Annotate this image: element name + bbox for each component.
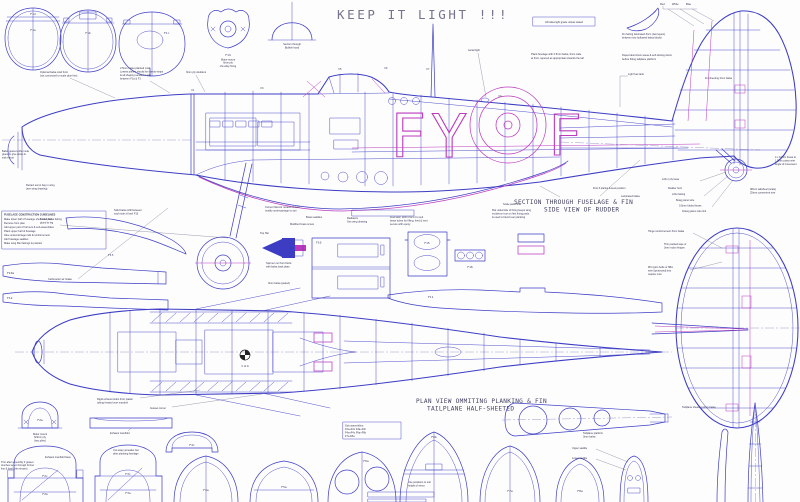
radiators-note-2: See wing drawing <box>347 220 368 224</box>
part-f10-crutch: F10 <box>312 238 390 298</box>
paired-balsa-note: 3mm balsa (paired) <box>268 281 290 285</box>
gusset-nose-3: side thrust <box>2 155 14 159</box>
spinner-note-1: Spinner cut from block <box>266 261 292 265</box>
former-label-f10a: F10a <box>7 271 14 275</box>
light-tank-note: Light fuel tank <box>628 72 645 76</box>
fuse-plank-note-2: at front, tapered as appropriate towards… <box>531 56 584 60</box>
fin-sheeting-note: Fin sheeting 2mm balsa <box>705 76 733 80</box>
construction-guidelines-box: FUSELAGE CONSTRUCTION GUIDELINES Make lo… <box>2 211 106 249</box>
lower-saddle-note: Lower saddle <box>572 456 588 460</box>
doped-note-1: Doped aluminium areas & self-closing doo… <box>622 53 673 57</box>
former-f2c-f2a: F2c F2a <box>8 446 83 502</box>
flash-blue-label: Blue <box>686 2 692 6</box>
tophat-note: Top Hat <box>260 231 269 235</box>
manifold-base-note: Exhaust manifold base <box>45 455 71 459</box>
hood-section-label-1: Section through <box>283 42 301 46</box>
part-f13-fairing: F13 <box>66 217 186 257</box>
saddle-bars <box>518 234 544 254</box>
material-note-text: All balsa light grade unless stated <box>545 20 584 24</box>
former-label-f6a: F6a <box>363 459 369 463</box>
platform-note-2: 3mm balsa <box>583 435 596 439</box>
spitfire-plan-drawing: F1d F1a F1b F1c F14 Motor mount 6mm ply … <box>0 0 800 502</box>
retracts-note-1: Current Mel-Air retracts shown <box>265 205 300 209</box>
tailwheel-note-1: 38mm tailwheel (scale) <box>750 187 776 191</box>
aerial-light-note: Aerial light <box>468 48 480 52</box>
former-f8a: F8a <box>556 458 604 502</box>
mm2a-note-3: (two plies) <box>34 438 46 442</box>
motor-mount-f2a: F2a Motor mount 6/4mm ply (two plies) <box>18 402 62 442</box>
tailwheel-note-2: 25mm convenient size <box>750 191 776 195</box>
mod-screw-note: Modified brass screw <box>290 222 314 226</box>
spinner-note-2: with balsa back plate <box>266 265 290 269</box>
guidelines-title: FUSELAGE CONSTRUCTION GUIDELINES <box>4 213 56 217</box>
plank-note-2: Lowest planks should be narrow strips <box>120 70 164 74</box>
former-label-f2c: F2c <box>42 474 48 478</box>
former-f7a: F7a <box>480 446 540 502</box>
tailplane-half-plan: Tailplane platform 3mm balsa <box>502 403 672 439</box>
station-f1: F1 <box>192 88 196 92</box>
f14-note-3: c/w alloy fixing <box>220 64 237 68</box>
part-f10a-strip: F10a <box>3 263 166 284</box>
material-note-box: All balsa light grade unless stated <box>533 17 595 26</box>
folded-brass-note: 0.5mm folded brass <box>679 204 702 208</box>
plank-note-3: & all shaping sanded in situ <box>120 73 152 77</box>
fin-flash-colour-labels: Red White Blue <box>660 2 714 26</box>
flat-note-1: Flat underside of fixing keeps wing <box>492 208 532 212</box>
former-f1b-section: F1b <box>60 10 116 72</box>
guidelines-line-5: Glue undercarriage rails & reinforcement <box>4 233 50 237</box>
brass-note-3: angle of movement <box>775 162 797 166</box>
cowl-note-1: Optional balsa cowl front <box>40 70 68 74</box>
carb-intake-note: Carburettor air intake <box>48 277 73 281</box>
rudder-horn-note: Rudder horn <box>668 186 683 190</box>
guidelines-line-7: Make wing fillet fairings & position <box>4 241 43 245</box>
flash-white-label: White <box>672 2 679 6</box>
brass-saddles-note: Brass saddles <box>306 215 323 219</box>
section-title-rudder: SIDE VIEW OF RUDDER <box>544 207 619 214</box>
station-f7: F7 <box>427 67 431 71</box>
doped-note-2: before fitting tailplane platform <box>622 57 656 61</box>
sub-box-line-1: Sub assemblies: <box>345 424 364 428</box>
bolts-note-2: steel (protected) into <box>648 269 672 273</box>
brass-note-1: 4 x 10mm brass to <box>775 155 797 159</box>
former-label-f1c: F1c <box>164 31 170 35</box>
former-label-f1b: F1b <box>85 31 91 35</box>
hinges-note-2: 3mm nylon hinges <box>664 246 685 250</box>
former-label-f5a: F5a <box>281 485 287 489</box>
plan-exhaust-note-2: tubing heated over mandrel <box>97 401 128 405</box>
exhaust-manifold-part: Exhaust manifold <box>90 418 172 435</box>
former-label-f10: F10 <box>316 241 322 245</box>
bolts-note-3: captive nuts <box>648 272 662 276</box>
former-label-f3a: F3a <box>125 491 131 495</box>
retract-bay-1: Retract servo bay in wing <box>26 183 55 187</box>
section-title-fuselage-fin: SECTION THROUGH FUSELAGE & FIN <box>514 199 633 206</box>
side-view-annotations-bottom: Balsa gusset either side glued to give d… <box>2 149 640 281</box>
former-label-f6b: F6b <box>431 435 437 439</box>
gusset-corner-note: Gusset corner <box>150 406 166 410</box>
former-label-f15: F15 <box>424 241 430 245</box>
sub-assemblies-box: Sub assemblies: F2a+F2c F3a+F3c F4a+F4c … <box>343 422 401 439</box>
fin-fairing-piece: Fin fairing laminated 3mm (two layers) b… <box>622 8 665 40</box>
plan-exhaust-note-1: Rigid exhaust stubs from plastic <box>97 397 134 401</box>
plan-view-titles: PLAN VIEW OMMITING PLANKING & FIN TAILPL… <box>416 398 547 413</box>
servo-pos-note-1: Use positions to suit <box>408 480 431 484</box>
code-letters-fy: FY <box>390 102 472 172</box>
former-label-f2a-row: F2a <box>42 492 48 496</box>
side-view-annotations-top: Optional balsa cowl front (not connected… <box>40 48 733 107</box>
guidelines-line-1: Make lower half of fuselage shell over p… <box>4 217 53 221</box>
fuse-plank-note-1: Plank fuselage with 2.5mm balsa, 9mm wid… <box>531 52 582 56</box>
saddle-labels: Upper saddle Lower saddle <box>572 446 628 470</box>
spreader-note-1: Cut away spreader bar <box>113 448 139 452</box>
fin-fairing-note-1: Fin fairing laminated 3mm (two layers) <box>622 32 665 36</box>
fuel-note-3: secure with epoxy <box>390 222 411 226</box>
part-f11-keel: F11 <box>388 288 662 313</box>
infill-note-2: each side of keel F13 <box>114 212 139 216</box>
brass-note-2: 1.5mm piano wire <box>775 159 796 163</box>
laminated-note: Laminated balsa <box>621 194 640 198</box>
former-label-f12: F12 <box>7 296 13 300</box>
spinner-assembly: Top Hat Spinner cut from block with bals… <box>260 231 306 285</box>
station-labels: F1 F3 F5 F6 F7 F9 <box>192 66 503 98</box>
guidelines-line-6: Add fuselage saddles <box>4 237 29 241</box>
former-label-f3c: F3c <box>125 472 131 476</box>
former-label-f14: F14 <box>225 53 231 57</box>
roundel <box>470 87 546 163</box>
hinges-note-1: Thin packed tape or <box>664 242 687 246</box>
part-f16: F16 <box>455 250 485 269</box>
former-label-f13: F13 <box>108 253 114 257</box>
litho-base-note: Litho / ply base <box>662 177 680 181</box>
plank-note-1: 2.5mm balsa planked cowl. <box>120 66 151 70</box>
upper-saddle-note: Upper saddle <box>572 446 588 450</box>
rudder-front-view <box>717 429 728 502</box>
spreader-note-2: after planking fuselage <box>113 452 139 456</box>
former-label-f4a: F4a <box>203 488 209 492</box>
page-title: KEEP IT LIGHT !!! <box>337 7 509 22</box>
former-label-f1a: F1a <box>30 28 36 32</box>
guidelines-line-4: Plank upper half of fuselage <box>4 229 36 233</box>
servo-pos-note-2: height of servo <box>408 484 425 488</box>
former-f1a-section: F1d F1a <box>5 8 61 70</box>
radiators-note-1: Radiators <box>347 216 359 220</box>
plank-note-4: between F1a & F1 <box>120 77 141 81</box>
cowl-note-2: (not connected to scale glue line) <box>40 74 78 78</box>
former-label-f7a: F7a <box>507 489 513 493</box>
fuel-note-2: brass tubes for filling, feed & vent <box>390 219 428 223</box>
former-label-f16: F16 <box>467 265 473 269</box>
infill-note-1: Solid balsa infill between <box>114 208 142 212</box>
former-f9-small <box>620 456 648 502</box>
former-label-f1d: F1d <box>30 12 36 16</box>
guidelines-line-3: Add upper part of formers & sub-assembli… <box>4 225 55 229</box>
flat-note-2: incidence true on first fixing pads <box>492 212 530 216</box>
tail-letter-f: F <box>548 104 587 169</box>
fuel-note-1: Fuel tank: drill F3 & F4 to suit <box>390 215 423 219</box>
squadron-code-letters: FY F <box>390 102 587 172</box>
station-f3: F3 <box>261 86 265 90</box>
former-f5a: F5a <box>250 461 318 502</box>
hinge-reinf-note: Hinge reinforcement 3mm balsa <box>648 229 685 233</box>
former-f14-motor-mount: F14 Motor mount 6mm ply c/w alloy fixing <box>208 9 250 68</box>
former-label-f2a-mount: F2a <box>37 418 43 422</box>
former-f4c: F4c <box>166 432 218 452</box>
coiled-fairing-2: glued to leg <box>40 221 54 225</box>
former-label-f4c: F4c <box>189 443 195 447</box>
sub-box-line-2: F2a+F2c F3a+F3c <box>345 427 367 431</box>
station-f5: F5 <box>339 67 343 71</box>
wire-link-note: 16swg piano wire link <box>682 209 707 213</box>
first-planks-note: First 3 planks & keel position <box>593 186 626 190</box>
cg-label: C of G <box>241 364 248 368</box>
part-f12-strip: F12 <box>3 292 168 310</box>
blueprint-sheet: F1d F1a F1b F1c F14 Motor mount 6mm ply … <box>0 0 800 502</box>
hood-section-label-2: Bubble hood <box>285 46 300 50</box>
fin-fairing-note-2: between two hollowed balsa blocks <box>622 36 663 40</box>
former-f4a: F4a <box>174 456 238 502</box>
sub-box-line-4: F7a F8a <box>345 434 355 438</box>
exhaust-manifold-note: Exhaust manifold <box>110 431 130 435</box>
ply-doubler-note: 3mm ply doublers <box>186 70 207 74</box>
former-label-f8a: F8a <box>577 489 583 493</box>
hood-section-view: Section through Bubble hood <box>268 2 316 50</box>
platform-note-1: Tailplane platform <box>583 431 603 435</box>
former-f6a: F6a <box>328 452 396 502</box>
flat-note-3: & used to blend rear planking <box>492 215 526 219</box>
piano-wire-note: 8swg piano wire <box>676 198 695 202</box>
litho-fairing-note: Litho fairing <box>672 192 686 196</box>
tailwheel-annotations: Litho / ply base Rudder horn Litho fairi… <box>662 155 797 213</box>
flash-red-label: Red <box>660 2 665 6</box>
retract-bay-2: (see wing drawing) <box>26 187 48 191</box>
tailplane-title: TAILPLANE HALF-SHEETED <box>427 406 514 413</box>
station-f9: F9 <box>499 94 503 98</box>
tailplane-sheeting-note: Tailplane sheeting 2mm balsa <box>682 405 716 409</box>
part-f15: F15 <box>405 232 450 276</box>
former-f6b: F6b <box>400 432 468 502</box>
retracts-note-2: modify undercarriage to suit <box>265 209 297 213</box>
bolts-note-1: M3 nylon bolts or 6BA <box>648 265 673 269</box>
former-label-f11: F11 <box>428 295 434 299</box>
guidelines-line-2: Remove from plan <box>4 221 25 225</box>
sub-box-line-3: F4a+F4c F6a+F6b <box>345 431 367 435</box>
station-f6: F6 <box>385 66 389 70</box>
cg-symbol: C of G <box>240 350 250 368</box>
